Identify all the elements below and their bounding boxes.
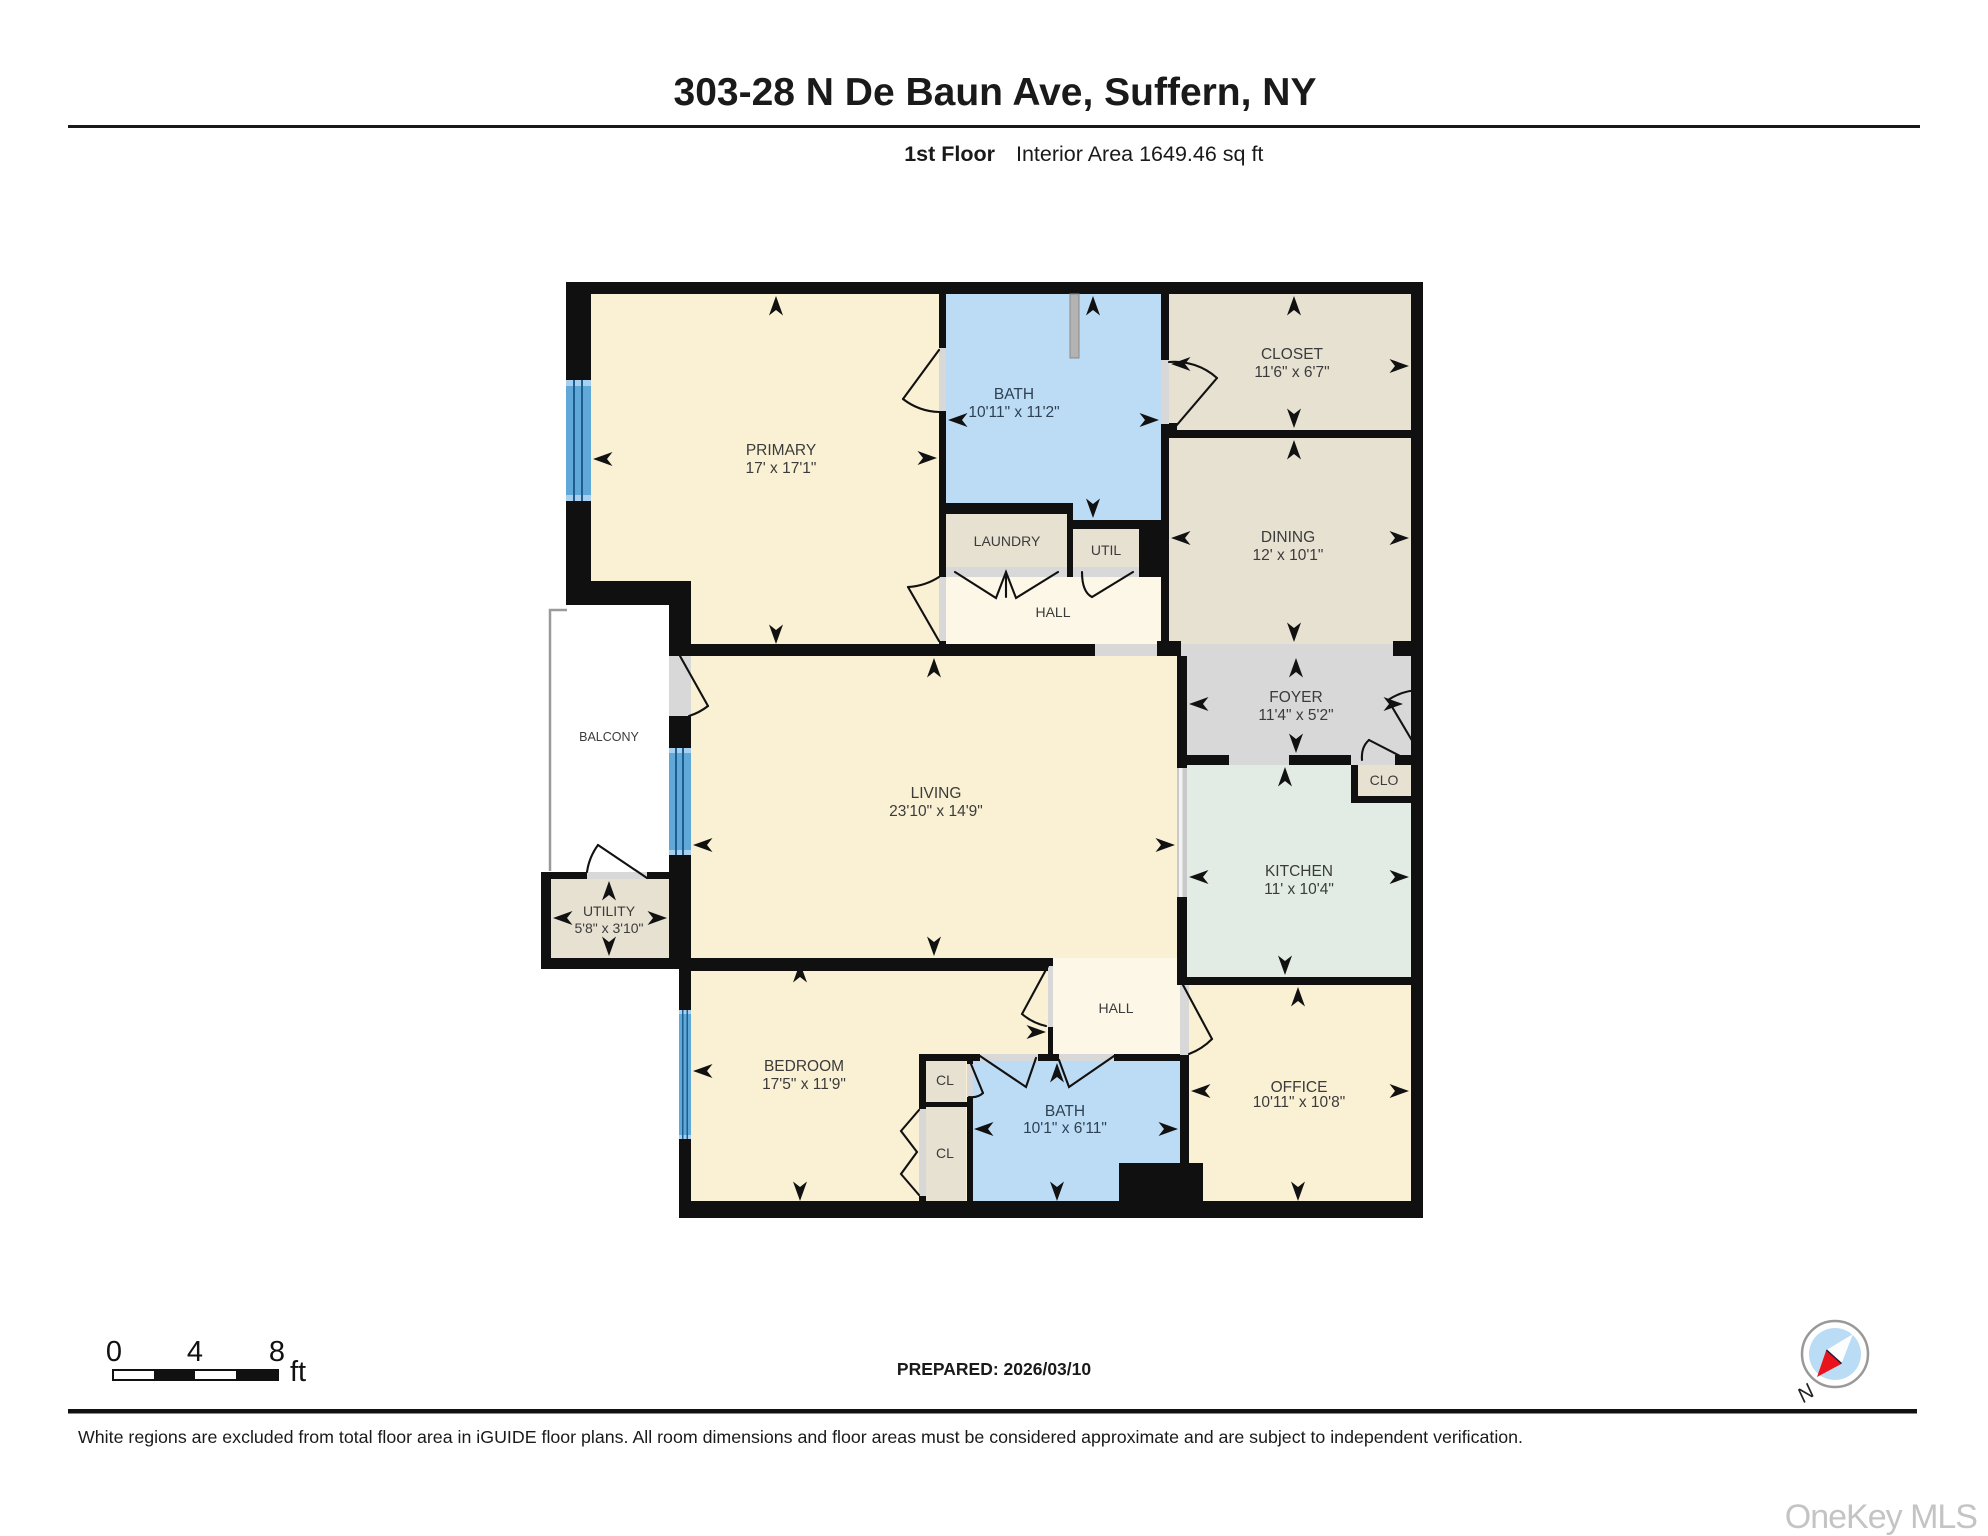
svg-text:BATH: BATH xyxy=(1045,1103,1085,1120)
svg-text:BATH: BATH xyxy=(994,386,1034,403)
svg-text:HALL: HALL xyxy=(1035,604,1070,620)
svg-text:12' x 10'1": 12' x 10'1" xyxy=(1253,547,1324,564)
svg-text:Interior Area 1649.46 sq ft: Interior Area 1649.46 sq ft xyxy=(1016,142,1263,166)
svg-text:LAUNDRY: LAUNDRY xyxy=(974,533,1041,549)
svg-text:UTIL: UTIL xyxy=(1091,542,1122,558)
svg-text:10'1" x 6'11": 10'1" x 6'11" xyxy=(1023,1120,1107,1137)
svg-text:PRIMARY: PRIMARY xyxy=(746,442,816,459)
svg-text:UTILITY: UTILITY xyxy=(583,903,636,919)
svg-text:8: 8 xyxy=(269,1336,285,1368)
svg-text:303-28 N De Baun Ave, Suffern,: 303-28 N De Baun Ave, Suffern, NY xyxy=(674,71,1317,114)
svg-text:10'11" x 10'8": 10'11" x 10'8" xyxy=(1253,1094,1345,1111)
svg-text:PREPARED: 2026/03/10: PREPARED: 2026/03/10 xyxy=(897,1359,1091,1379)
svg-text:11'4" x 5'2": 11'4" x 5'2" xyxy=(1258,707,1333,724)
svg-text:BALCONY: BALCONY xyxy=(579,730,639,744)
svg-text:HALL: HALL xyxy=(1098,1000,1133,1016)
svg-text:1st Floor: 1st Floor xyxy=(904,142,995,166)
svg-text:23'10" x 14'9": 23'10" x 14'9" xyxy=(889,803,983,820)
svg-text:CL: CL xyxy=(936,1072,954,1088)
svg-text:4: 4 xyxy=(187,1336,203,1368)
svg-text:BEDROOM: BEDROOM xyxy=(764,1058,844,1075)
svg-text:FOYER: FOYER xyxy=(1269,689,1322,706)
svg-text:0: 0 xyxy=(106,1336,122,1368)
svg-text:11' x 10'4": 11' x 10'4" xyxy=(1264,881,1334,898)
svg-text:10'11" x 11'2": 10'11" x 11'2" xyxy=(968,404,1059,421)
svg-text:17'5" x 11'9": 17'5" x 11'9" xyxy=(762,1076,846,1093)
svg-text:CL: CL xyxy=(936,1145,954,1161)
svg-text:11'6" x 6'7": 11'6" x 6'7" xyxy=(1254,364,1329,381)
svg-text:5'8" x 3'10": 5'8" x 3'10" xyxy=(575,920,644,936)
svg-text:ft: ft xyxy=(290,1356,306,1388)
svg-text:CLOSET: CLOSET xyxy=(1261,346,1324,363)
svg-text:N: N xyxy=(1793,1379,1819,1407)
svg-text:LIVING: LIVING xyxy=(911,785,962,802)
svg-text:17' x 17'1": 17' x 17'1" xyxy=(746,460,817,477)
svg-text:OneKey MLS: OneKey MLS xyxy=(1785,1498,1978,1536)
svg-text:CLO: CLO xyxy=(1370,772,1399,788)
svg-text:DINING: DINING xyxy=(1261,529,1315,546)
svg-text:KITCHEN: KITCHEN xyxy=(1265,863,1333,880)
svg-text:White regions are excluded fro: White regions are excluded from total fl… xyxy=(78,1427,1523,1447)
